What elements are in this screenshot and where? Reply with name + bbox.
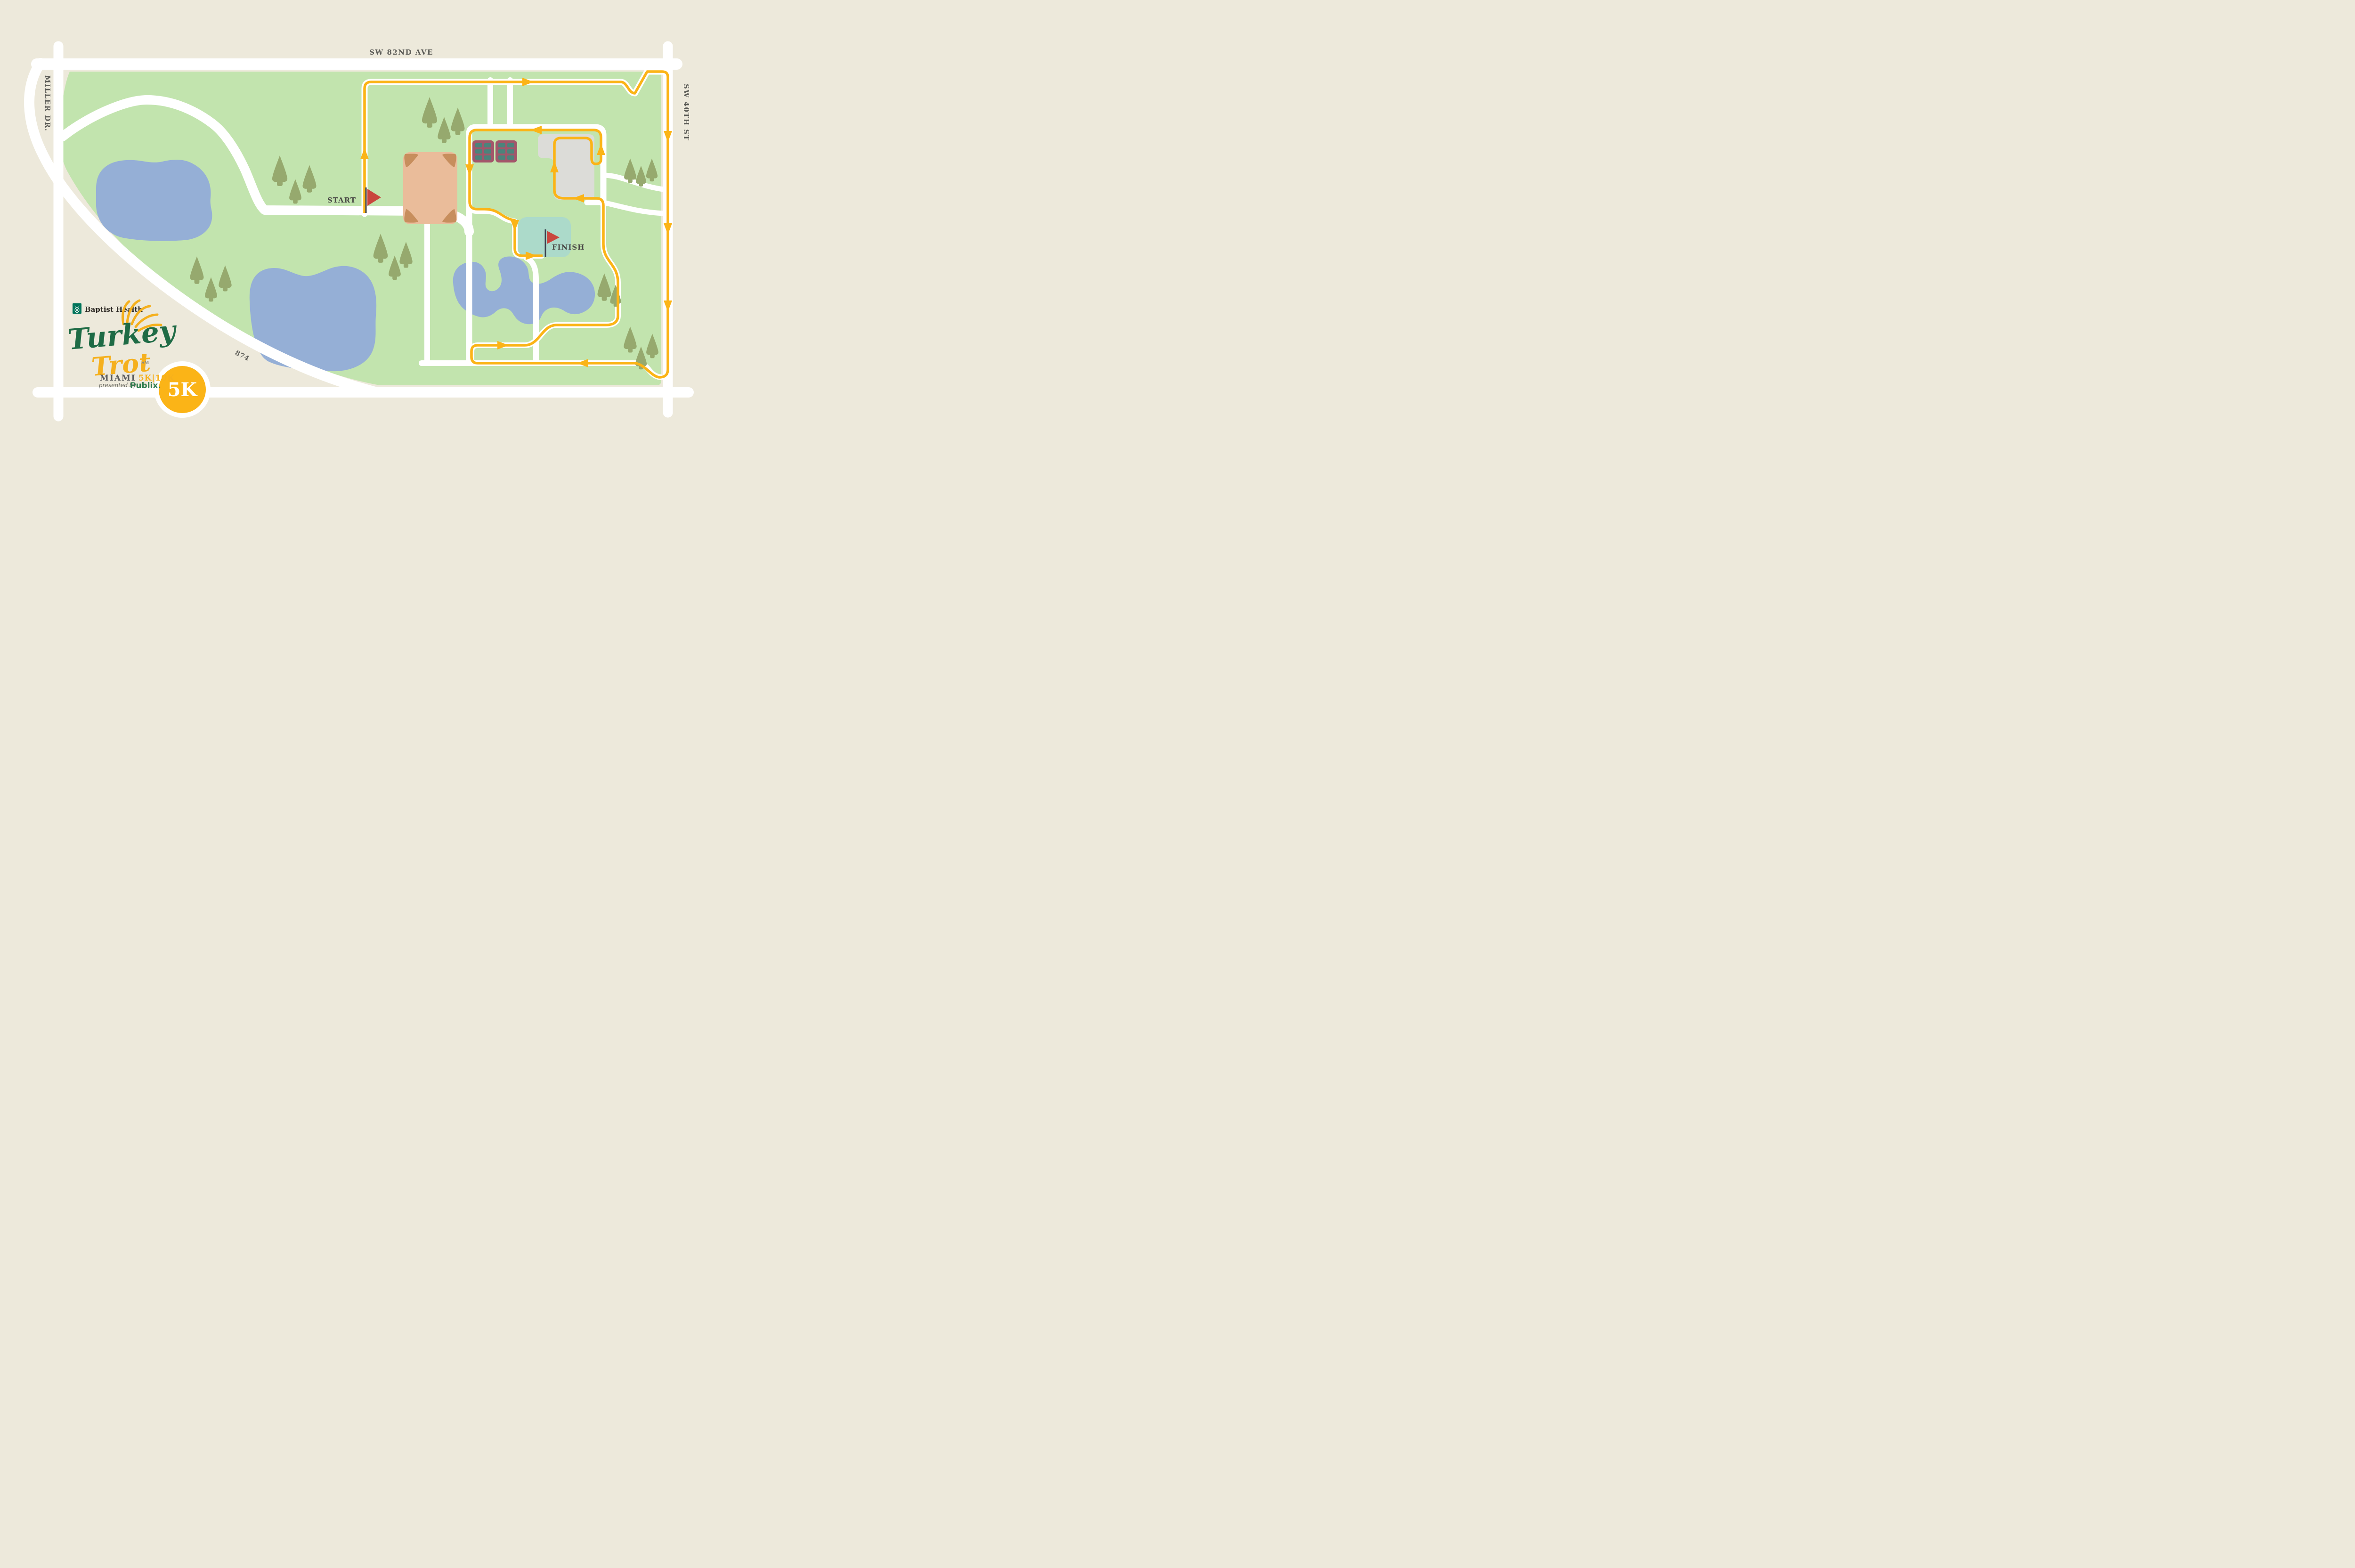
road-label-left: MILLER DR.	[43, 75, 52, 132]
road-label-top: SW 82ND AVE	[369, 48, 433, 57]
finish-label: FINISH	[552, 243, 585, 252]
baptist-health-label: Baptist Health	[85, 305, 143, 314]
lake-northwest	[96, 160, 212, 241]
publix-logo: Publix.	[130, 381, 161, 390]
ballfield	[403, 152, 457, 224]
road-label-right: SW 40TH ST	[682, 84, 690, 141]
court	[495, 140, 517, 162]
course-map: SW 82ND AVE MILLER DR. SW 40TH ST 874 ST…	[0, 0, 739, 460]
logo-trademark: SM	[141, 361, 149, 366]
start-label: START	[327, 196, 356, 204]
distance-badge: 5K	[154, 361, 211, 418]
map-canvas: SW 82ND AVE MILLER DR. SW 40TH ST 874 ST…	[0, 0, 739, 460]
court	[472, 140, 494, 162]
